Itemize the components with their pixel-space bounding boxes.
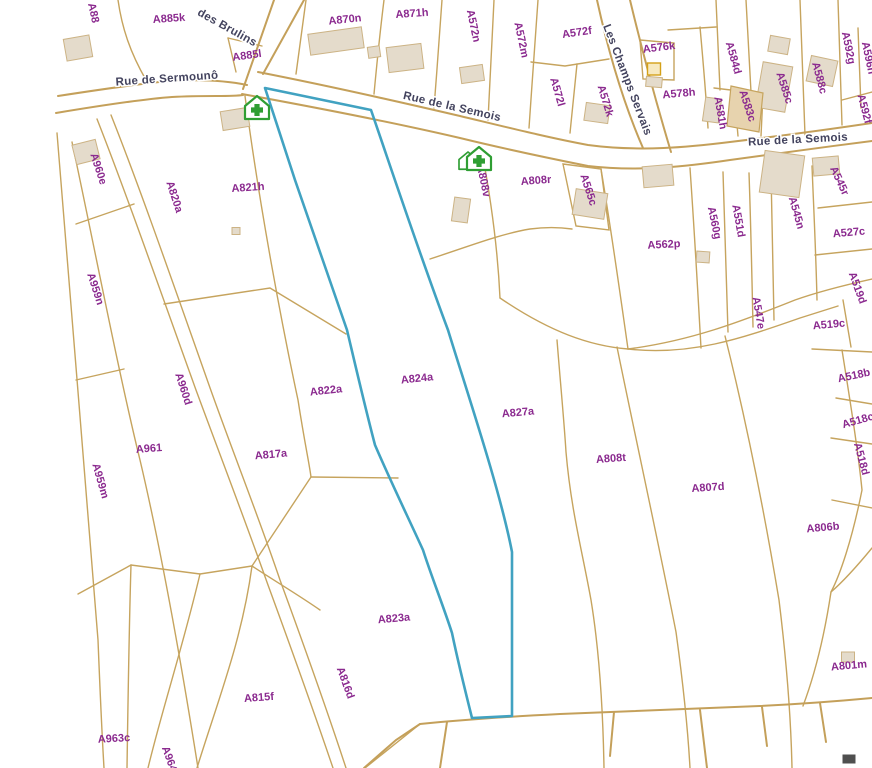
parcel-label-A885l: A885l xyxy=(232,48,263,64)
green-house-cross-icon[interactable] xyxy=(245,96,269,119)
parcel-label-A823a: A823a xyxy=(377,611,411,626)
parcel-label-A519d: A519d xyxy=(846,270,869,305)
parcel-label-A572l: A572l xyxy=(547,76,567,108)
parcel-label-A960e: A960e xyxy=(87,152,108,187)
parcel-label-A592f: A592f xyxy=(854,93,872,125)
parcel-label-A592g: A592g xyxy=(839,31,858,66)
parcel-label-A562p: A562p xyxy=(647,238,681,252)
parcel-label-A963c: A963c xyxy=(97,732,130,746)
parcel-label-A572f: A572f xyxy=(561,25,593,41)
parcel-label-A518c: A518c xyxy=(841,411,872,431)
parcel-label-A545n: A545n xyxy=(786,195,807,230)
parcel-label-A816d: A816d xyxy=(334,665,357,700)
parcel-label-A551d: A551d xyxy=(729,204,747,239)
parcel-label-A808t: A808t xyxy=(596,452,627,466)
parcel-label-A806b: A806b xyxy=(806,520,840,535)
parcel-label-A815f: A815f xyxy=(244,691,275,705)
street-label: Rue de Sermounô xyxy=(115,69,218,88)
parcel-label-A88: A88 xyxy=(85,2,101,24)
parcel-label-A827a: A827a xyxy=(501,405,535,420)
parcel-label-A545r: A545r xyxy=(827,165,851,198)
parcel-label-A817a: A817a xyxy=(254,447,288,462)
parcel-label-A961: A961 xyxy=(135,442,162,456)
parcel-label-A560g: A560g xyxy=(705,206,724,241)
parcel-label-A518d: A518d xyxy=(851,441,871,476)
parcel-label-A578h: A578h xyxy=(662,86,696,101)
parcel-label-A801m: A801m xyxy=(830,658,867,673)
parcel-label-A527c: A527c xyxy=(832,226,865,241)
parcel-label-A820a: A820a xyxy=(163,180,185,215)
parcel-label-A576k: A576k xyxy=(642,40,677,56)
parcel-label-A964e: A964e xyxy=(159,745,181,768)
parcel-label-A584d: A584d xyxy=(723,40,744,75)
parcel-label-A547e: A547e xyxy=(749,296,766,330)
street-label: des Brulins xyxy=(195,7,258,49)
parcel-label-A885k: A885k xyxy=(152,12,186,26)
parcel-label-A518b: A518b xyxy=(837,367,872,386)
parcel-label-A807d: A807d xyxy=(691,481,725,495)
parcel-label-A572m: A572m xyxy=(511,21,530,59)
parcel-label-A572n: A572n xyxy=(464,9,483,44)
parcel-label-A821h: A821h xyxy=(231,181,265,195)
parcel-label-A519c: A519c xyxy=(812,318,845,333)
parcel-label-A596h: A596h xyxy=(859,41,872,76)
parcel-label-A822a: A822a xyxy=(309,383,343,398)
parcel-label-A871h: A871h xyxy=(395,7,429,21)
green-house-cross-icon[interactable] xyxy=(459,147,491,170)
cadastral-map-canvas[interactable]: des BrulinsRue de SermounôRue de la Semo… xyxy=(0,0,872,768)
parcel-label-A870n: A870n xyxy=(328,12,362,27)
parcel-label-A959m: A959m xyxy=(89,462,111,500)
parcel-label-A824a: A824a xyxy=(400,371,434,386)
parcel-label-A808r: A808r xyxy=(520,174,552,188)
